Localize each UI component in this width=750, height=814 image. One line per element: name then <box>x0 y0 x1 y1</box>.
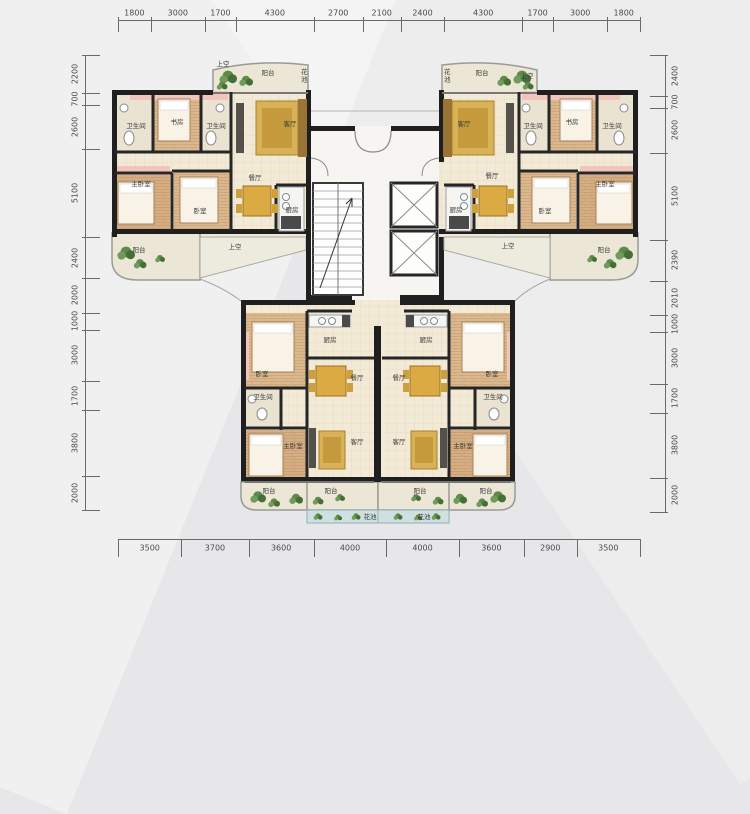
room-label-kitchen: 厨房 <box>324 337 337 344</box>
dimension-label: 1700 <box>527 9 547 18</box>
room-label-flowerbed: 花池 <box>443 69 450 84</box>
dimension-tick <box>650 413 668 414</box>
dimension-tick <box>82 313 100 314</box>
room-label-balcony: 阳台 <box>133 247 146 254</box>
room-label-balcony: 阳台 <box>480 488 493 495</box>
room-label-bathroom: 卫生间 <box>126 123 146 130</box>
room-label-living: 客厅 <box>284 121 297 128</box>
dimension-tick <box>650 384 668 385</box>
room-label-flowerbed: 花池 <box>418 514 431 521</box>
dimension-tick <box>650 478 668 479</box>
dimension-tick <box>82 381 100 382</box>
dimension-tick <box>82 278 100 279</box>
dimension-tick <box>82 105 100 106</box>
dimension-tick <box>553 17 554 32</box>
dimension-tick <box>82 510 100 511</box>
dimension-tick <box>650 108 668 109</box>
room-label-bedroom: 卧室 <box>486 371 499 378</box>
dimension-label: 5100 <box>71 183 80 203</box>
room-label-balcony: 阳台 <box>262 70 275 77</box>
dimension-label: 3700 <box>205 544 225 553</box>
room-label-living: 客厅 <box>351 439 364 446</box>
dimension-tick <box>82 149 100 150</box>
dimension-label: 2400 <box>412 9 432 18</box>
dimension-label: 700 <box>71 91 80 106</box>
dimension-label: 2000 <box>71 285 80 305</box>
room-label-study: 书房 <box>171 119 184 126</box>
dimension-tick <box>82 330 100 331</box>
room-label-kitchen: 厨房 <box>420 337 433 344</box>
dimension-label: 1700 <box>71 386 80 406</box>
room-label-living: 客厅 <box>393 439 406 446</box>
room-label-dining: 餐厅 <box>393 375 406 382</box>
dimension-label: 1700 <box>210 9 230 18</box>
room-label-bathroom: 卫生间 <box>523 123 543 130</box>
room-label-dining: 餐厅 <box>486 173 499 180</box>
dimension-tick <box>607 17 608 32</box>
dimension-line-right <box>665 55 666 512</box>
dimension-label: 5100 <box>671 186 680 206</box>
room-labels: 卫生间 书房 卫生间 客厅 餐厅 主卧室 卧室 厨房 阳台 花池 上空 阳台 上… <box>0 0 750 560</box>
room-label-bedroom: 卧室 <box>194 208 207 215</box>
room-label-void: 上空 <box>217 61 230 68</box>
room-label-master: 主卧室 <box>131 181 151 188</box>
dimension-label: 3000 <box>671 348 680 368</box>
room-label-kitchen: 厨房 <box>450 207 463 214</box>
room-label-balcony: 阳台 <box>476 70 489 77</box>
dimension-tick <box>650 55 668 56</box>
room-label-living: 客厅 <box>458 121 471 128</box>
room-label-balcony: 阳台 <box>598 247 611 254</box>
dimension-label: 2600 <box>671 120 680 140</box>
dimension-tick <box>236 17 237 32</box>
dimension-label: 1000 <box>71 311 80 331</box>
dimension-tick <box>82 93 100 94</box>
dimension-label: 2010 <box>671 288 680 308</box>
dimension-tick <box>459 539 460 557</box>
dimension-tick <box>205 17 206 32</box>
dimension-tick <box>118 539 119 557</box>
dimension-label: 2100 <box>372 9 392 18</box>
dimension-tick <box>363 17 364 32</box>
dimension-label: 3500 <box>140 544 160 553</box>
room-label-balcony: 阳台 <box>414 488 427 495</box>
dimension-label: 3800 <box>671 435 680 455</box>
dimension-label: 3600 <box>271 544 291 553</box>
dimension-tick <box>650 281 668 282</box>
dimension-tick <box>522 17 523 32</box>
dimension-tick <box>444 17 445 32</box>
dimension-label: 1000 <box>671 314 680 334</box>
dimension-label: 3600 <box>481 544 501 553</box>
room-label-dining: 餐厅 <box>249 175 262 182</box>
dimension-label: 1800 <box>124 9 144 18</box>
dimension-label: 2000 <box>71 483 80 503</box>
floor-plan-page: 卫生间 书房 卫生间 客厅 餐厅 主卧室 卧室 厨房 阳台 花池 上空 阳台 上… <box>0 0 750 560</box>
dimension-tick <box>650 315 668 316</box>
dimension-label: 2600 <box>71 117 80 137</box>
dimension-label: 2390 <box>671 250 680 270</box>
dimension-tick <box>640 17 641 32</box>
dimension-tick <box>249 539 250 557</box>
dimension-tick <box>181 539 182 557</box>
dimension-label: 1800 <box>614 9 634 18</box>
dimension-tick <box>650 332 668 333</box>
dimension-label: 3500 <box>598 544 618 553</box>
dimension-label: 2900 <box>540 544 560 553</box>
dimension-tick <box>82 237 100 238</box>
room-label-void: 上空 <box>229 244 242 251</box>
dimension-tick <box>386 539 387 557</box>
dimension-tick <box>650 240 668 241</box>
dimension-label: 2400 <box>71 247 80 267</box>
room-label-kitchen: 厨房 <box>286 207 299 214</box>
room-label-bathroom: 卫生间 <box>483 394 503 401</box>
dimension-line-left <box>85 55 86 510</box>
dimension-tick <box>650 153 668 154</box>
dimension-label: 2000 <box>671 485 680 505</box>
room-label-balcony: 阳台 <box>263 488 276 495</box>
dimension-label: 2200 <box>71 64 80 84</box>
dimension-label: 1700 <box>671 388 680 408</box>
room-label-balcony: 阳台 <box>325 488 338 495</box>
dimension-tick <box>314 539 315 557</box>
room-label-bathroom: 卫生间 <box>253 394 273 401</box>
dimension-tick <box>650 96 668 97</box>
dimension-tick <box>82 410 100 411</box>
room-label-bathroom: 卫生间 <box>206 123 226 130</box>
dimension-label: 4000 <box>412 544 432 553</box>
dimension-tick <box>524 539 525 557</box>
dimension-label: 3000 <box>71 345 80 365</box>
room-label-bathroom: 卫生间 <box>602 123 622 130</box>
room-label-master: 主卧室 <box>595 181 615 188</box>
room-label-flowerbed: 花池 <box>364 514 377 521</box>
dimension-tick <box>82 55 100 56</box>
dimension-label: 2700 <box>328 9 348 18</box>
dimension-label: 700 <box>671 94 680 109</box>
dimension-label: 3000 <box>168 9 188 18</box>
dimension-tick <box>640 539 641 557</box>
room-label-study: 书房 <box>566 119 579 126</box>
dimension-tick <box>151 17 152 32</box>
room-label-bedroom: 卧室 <box>256 371 269 378</box>
room-label-bedroom: 卧室 <box>539 208 552 215</box>
dimension-line-top <box>118 20 640 21</box>
room-label-master: 主卧室 <box>283 443 303 450</box>
room-label-void: 上空 <box>502 243 515 250</box>
room-label-dining: 餐厅 <box>351 375 364 382</box>
dimension-tick <box>82 476 100 477</box>
dimension-label: 4300 <box>473 9 493 18</box>
room-label-void: 上空 <box>521 73 534 80</box>
dimension-tick <box>118 17 119 32</box>
dimension-tick <box>577 539 578 557</box>
dimension-tick <box>401 17 402 32</box>
room-label-master: 主卧室 <box>453 443 473 450</box>
dimension-label: 4300 <box>265 9 285 18</box>
dimension-label: 4000 <box>340 544 360 553</box>
dimension-label: 2400 <box>671 65 680 85</box>
dimension-tick <box>314 17 315 32</box>
dimension-label: 3000 <box>570 9 590 18</box>
dimension-tick <box>650 512 668 513</box>
dimension-line-bottom <box>118 539 640 540</box>
dimension-label: 3800 <box>71 433 80 453</box>
room-label-flowerbed: 花池 <box>300 69 307 84</box>
